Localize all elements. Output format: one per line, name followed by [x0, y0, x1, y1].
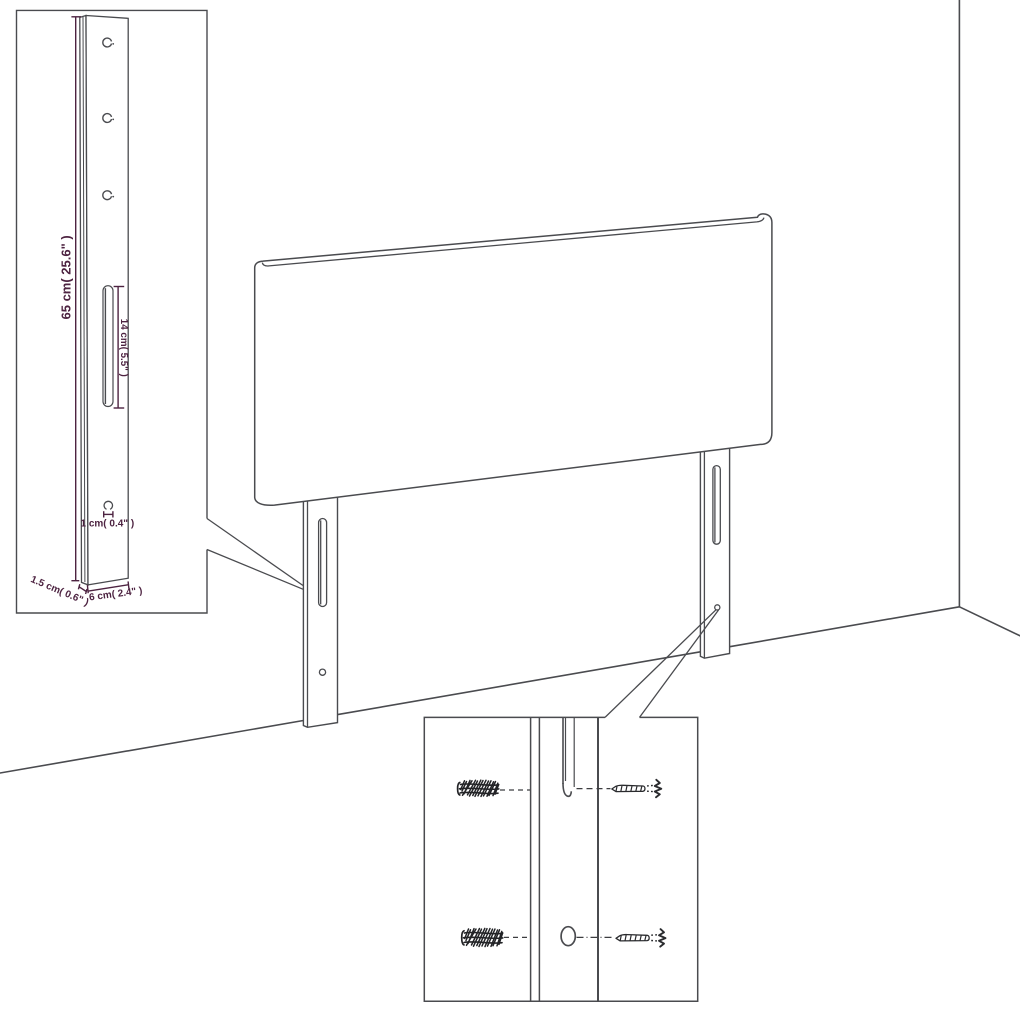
svg-text:1 cm( 0.4" ): 1 cm( 0.4" )	[81, 519, 135, 530]
svg-text:65 cm( 25.6" ): 65 cm( 25.6" )	[59, 235, 74, 319]
svg-text:14 cm( 5.5" ): 14 cm( 5.5" )	[118, 319, 129, 377]
